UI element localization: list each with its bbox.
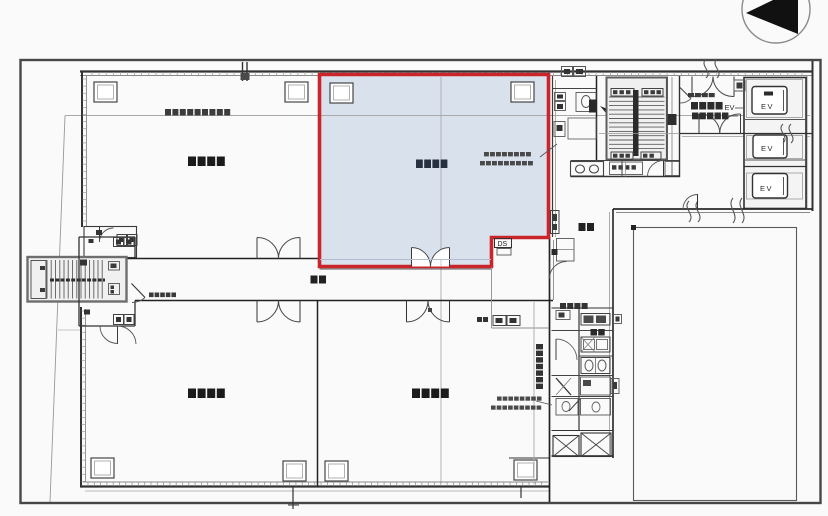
svg-text:EV: EV [725,103,735,112]
svg-text:EV: EV [761,102,774,111]
svg-text:EV: EV [761,144,774,153]
svg-text:DS: DS [498,241,508,248]
svg-text:EV: EV [760,184,773,193]
